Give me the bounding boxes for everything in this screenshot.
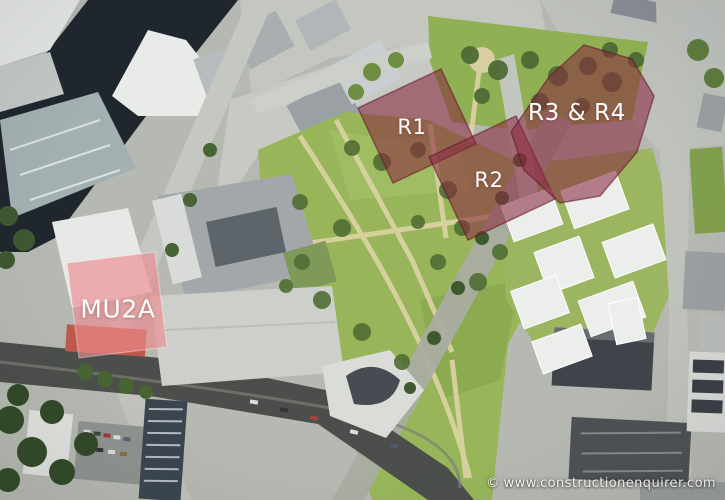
satellite-photo xyxy=(0,0,725,500)
copyright-icon: © xyxy=(486,476,499,491)
plot-label-r3-r4: R3 & R4 xyxy=(528,100,626,126)
plot-label-mu2a: MU2A xyxy=(80,295,155,324)
building-east-light xyxy=(700,316,725,352)
plot-label-r2: R2 xyxy=(474,168,503,192)
building-vented-roof xyxy=(687,351,725,432)
watermark: ©www.constructionenquirer.com xyxy=(486,476,716,491)
green-strip-east xyxy=(689,147,725,234)
aerial-masterplan-image: R1 R2 R3 & R4 MU2A ©www.constructionenqu… xyxy=(0,0,725,500)
car-park-dark-southeast xyxy=(568,417,691,485)
watermark-url: www.constructionenquirer.com xyxy=(504,476,716,491)
building-east-gray xyxy=(683,251,725,311)
building-striped-roof xyxy=(139,399,188,500)
plot-label-r1: R1 xyxy=(397,115,426,139)
